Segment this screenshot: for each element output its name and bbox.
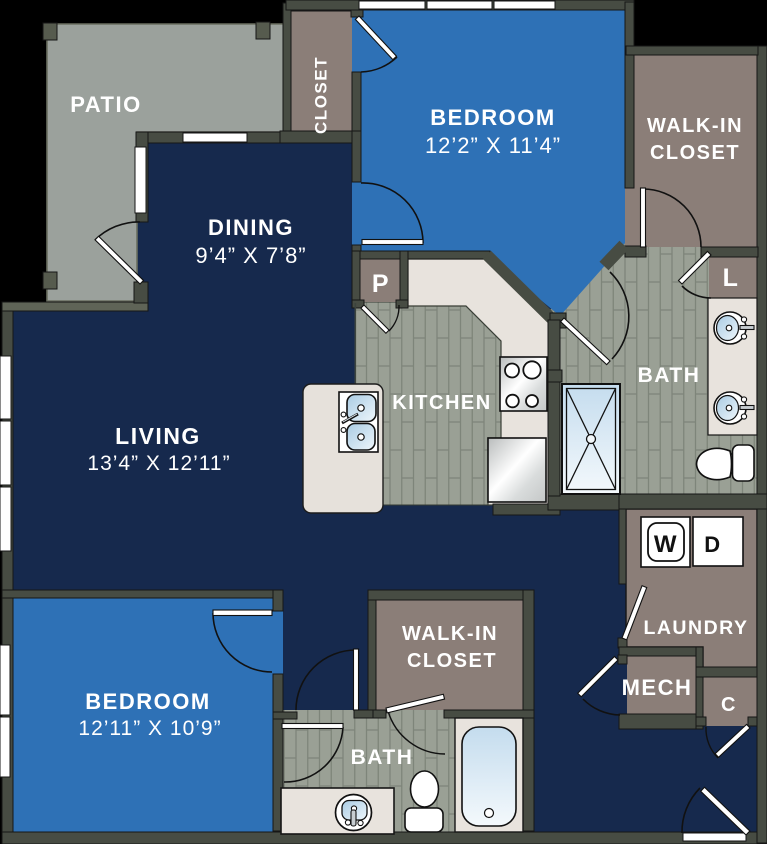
svg-text:MECH: MECH: [622, 675, 693, 700]
svg-text:C: C: [721, 694, 737, 716]
svg-text:P: P: [372, 270, 390, 298]
svg-text:KITCHEN: KITCHEN: [392, 392, 491, 414]
svg-text:BATH: BATH: [638, 364, 701, 387]
svg-text:BEDROOM: BEDROOM: [85, 689, 210, 714]
svg-text:BATH: BATH: [351, 746, 414, 769]
svg-text:CLOSET: CLOSET: [407, 650, 497, 672]
svg-text:WALK-IN: WALK-IN: [402, 623, 498, 645]
svg-text:L: L: [723, 264, 740, 292]
svg-text:12’11” X 10’9”: 12’11” X 10’9”: [78, 717, 221, 740]
svg-text:DINING: DINING: [208, 215, 294, 240]
svg-text:D: D: [704, 532, 721, 557]
svg-text:LAUNDRY: LAUNDRY: [643, 617, 748, 639]
svg-text:W: W: [654, 531, 678, 558]
svg-text:PATIO: PATIO: [70, 92, 141, 117]
svg-text:13’4” X 12’11”: 13’4” X 12’11”: [87, 452, 230, 475]
svg-text:BEDROOM: BEDROOM: [430, 105, 555, 130]
svg-text:12’2” X 11’4”: 12’2” X 11’4”: [425, 133, 561, 158]
svg-text:CLOSET: CLOSET: [650, 142, 740, 164]
svg-text:9’4” X 7’8”: 9’4” X 7’8”: [195, 243, 306, 268]
svg-text:CLOSET: CLOSET: [312, 56, 331, 134]
svg-text:WALK-IN: WALK-IN: [647, 115, 743, 137]
svg-text:LIVING: LIVING: [115, 423, 201, 449]
